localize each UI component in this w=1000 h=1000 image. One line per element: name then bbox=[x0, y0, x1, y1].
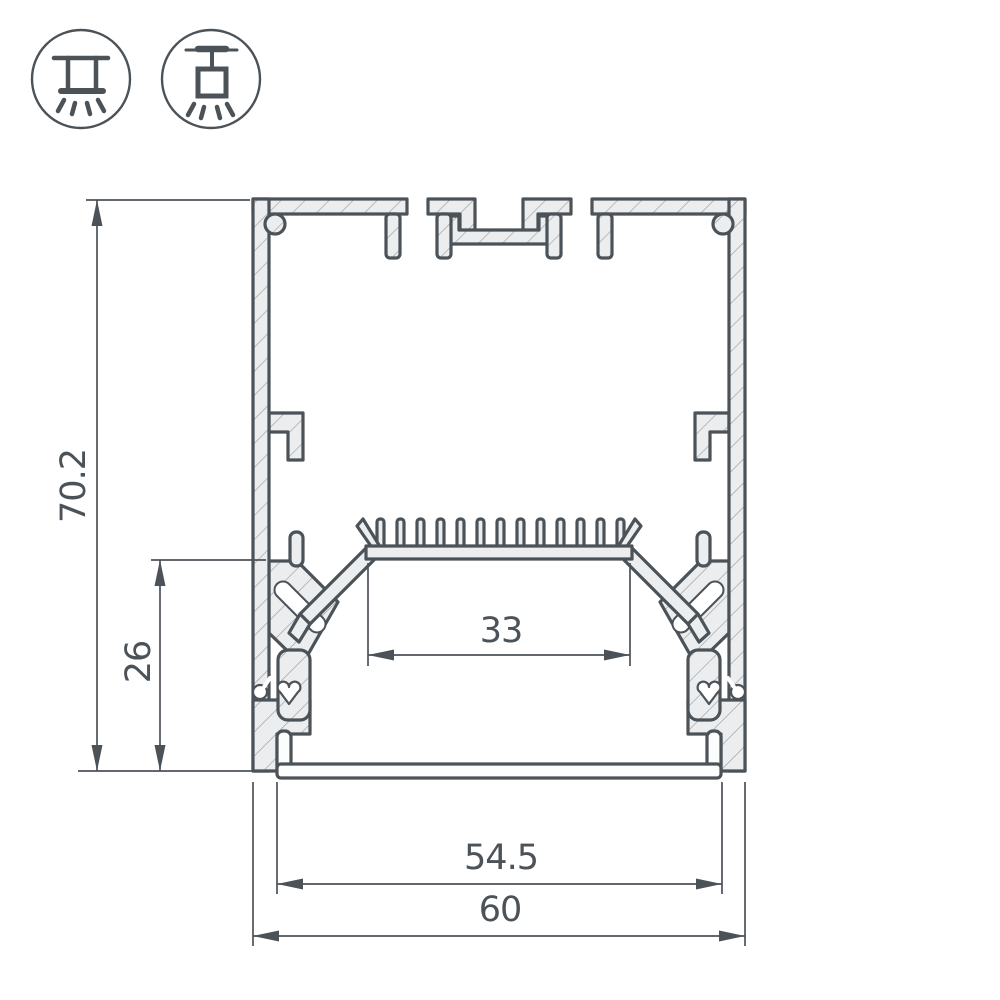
dimension-label-led-level-height: 26 bbox=[119, 641, 159, 684]
light-rays-icon bbox=[188, 104, 233, 118]
dimension-label-led-shelf-width: 33 bbox=[480, 611, 523, 651]
led-shelf bbox=[366, 546, 632, 559]
lamp-body-icon bbox=[198, 69, 226, 96]
surface-mount-icon bbox=[32, 30, 130, 128]
dimension-label-overall-height: 70.2 bbox=[54, 449, 94, 523]
profile-cross-section bbox=[253, 199, 745, 778]
drawing-canvas: 70.2 26 33 54.5 60 bbox=[0, 0, 1000, 1000]
icon-circle bbox=[162, 30, 260, 128]
diffuser bbox=[277, 764, 721, 778]
left-retainer-tab bbox=[290, 532, 303, 566]
dimension-overall-height-lines bbox=[78, 200, 264, 771]
top-wall bbox=[253, 199, 745, 258]
pendant-mount-icon bbox=[162, 30, 260, 128]
left-inner-rail bbox=[269, 413, 303, 460]
right-inner-rail bbox=[695, 413, 729, 460]
dimension-label-inner-width: 54.5 bbox=[464, 838, 538, 878]
light-rays-icon bbox=[58, 100, 104, 114]
right-retainer-tab bbox=[697, 532, 710, 566]
icon-circle bbox=[32, 30, 130, 128]
dimension-led-level-height-lines bbox=[151, 560, 266, 771]
left-screw-boss bbox=[265, 214, 285, 234]
dimension-label-overall-width: 60 bbox=[479, 890, 522, 930]
right-screw-boss bbox=[713, 214, 733, 234]
